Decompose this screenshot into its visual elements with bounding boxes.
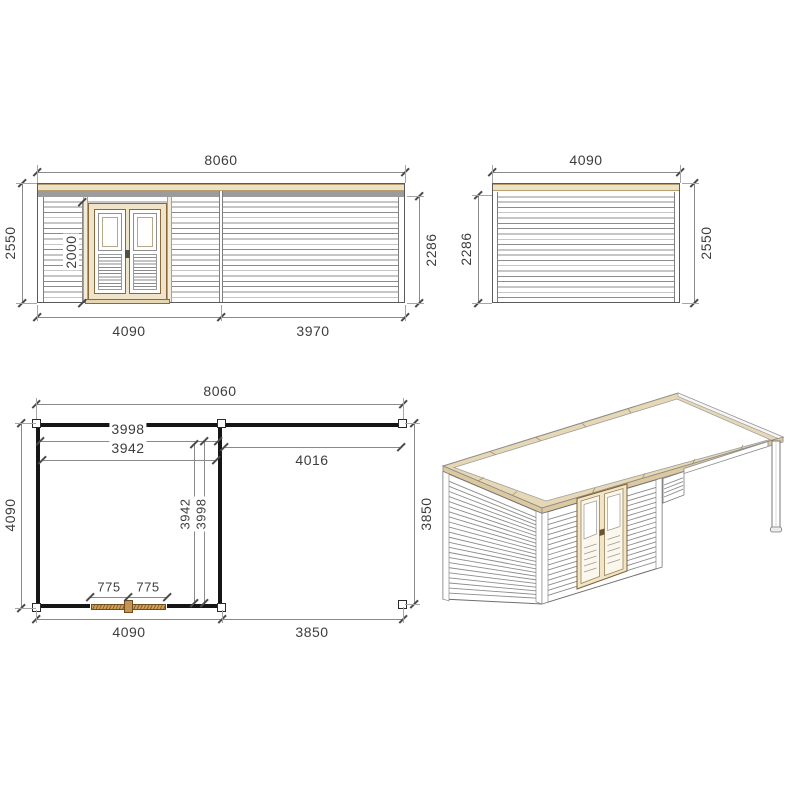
door-louver xyxy=(98,254,122,290)
plan-door-leaf xyxy=(132,604,166,610)
plan-door-leaf xyxy=(91,604,125,610)
plan-door-leaf-right-label: 775 xyxy=(134,580,161,595)
extension-line xyxy=(37,165,38,183)
plan-depth-left-label: 4090 xyxy=(2,496,18,533)
plan-inner-width-b-line xyxy=(42,460,216,461)
door-glass xyxy=(584,501,597,539)
extension-line xyxy=(405,305,406,321)
extension-line xyxy=(407,303,424,304)
corner-post xyxy=(398,197,404,302)
corner-board xyxy=(542,512,548,604)
corner-board xyxy=(656,478,662,569)
door-threshold xyxy=(85,299,170,304)
extension-line xyxy=(36,610,37,623)
front-elevation-building xyxy=(37,183,405,303)
technical-drawing-sheet: 8060 2550 2000 2286 xyxy=(0,0,794,794)
door-height-dim-line xyxy=(82,202,83,303)
plan-top-dim-line xyxy=(36,404,403,405)
corner-post xyxy=(674,192,679,302)
extension-line xyxy=(682,303,699,304)
plan-bottom-left-label: 4090 xyxy=(110,624,147,640)
corner-post xyxy=(493,192,498,302)
plan-right-dim-line xyxy=(414,423,415,604)
plan-inner-width-b-label: 3942 xyxy=(109,440,146,456)
extension-line xyxy=(222,610,223,623)
door-height-label: 2000 xyxy=(63,233,79,270)
extension-line xyxy=(682,183,699,184)
extension-line xyxy=(405,423,420,424)
corner-post xyxy=(38,197,44,302)
door-leaf-right xyxy=(129,209,161,294)
front-left-dim-line xyxy=(22,183,23,303)
side-elevation-building xyxy=(492,183,680,303)
plan-post xyxy=(217,419,226,428)
front-right-dim-line xyxy=(419,196,420,303)
extension-line xyxy=(407,196,424,197)
extension-line xyxy=(405,604,420,605)
iso-double-door xyxy=(577,484,627,589)
canopy-post xyxy=(771,441,782,532)
post-foot xyxy=(771,527,782,532)
front-bottom-left-label: 4090 xyxy=(110,323,147,339)
extension-line xyxy=(15,608,36,609)
extension-line xyxy=(680,165,681,183)
door-glass xyxy=(608,494,621,531)
door-louver xyxy=(133,254,157,290)
wall-siding xyxy=(493,192,679,302)
side-height-label: 2550 xyxy=(698,224,714,261)
front-wall-height-label: 2286 xyxy=(423,231,439,268)
plan-door-meeting-stile xyxy=(124,600,133,613)
door-glass xyxy=(133,213,157,251)
extension-line xyxy=(15,423,36,424)
plan-canopy-width-label: 4016 xyxy=(293,452,330,468)
roof-fascia xyxy=(493,184,679,191)
plan-inner-depth-a-label: 3942 xyxy=(178,497,193,532)
plan-width-label: 8060 xyxy=(201,383,238,399)
extension-line xyxy=(472,303,492,304)
roof-fascia xyxy=(38,184,404,191)
plan-inner-width-a-label: 3998 xyxy=(109,421,146,437)
extension-line xyxy=(405,165,406,183)
extension-line xyxy=(16,183,37,184)
wall-module-joint xyxy=(219,191,223,302)
front-bottom-right-label: 3970 xyxy=(294,323,331,339)
extension-line xyxy=(37,305,38,321)
plan-door-leaf-left-label: 775 xyxy=(95,580,122,595)
door-leaf-left xyxy=(94,209,126,294)
corner-board xyxy=(443,472,449,602)
isometric-view xyxy=(435,383,791,641)
extension-line xyxy=(472,195,492,196)
front-double-door xyxy=(88,203,167,302)
extension-line xyxy=(221,305,222,321)
door-handle xyxy=(125,250,130,258)
side-top-dim-line xyxy=(492,172,680,173)
door-glass xyxy=(98,213,122,251)
front-top-dim-line xyxy=(37,172,405,173)
plan-depth-right-label: 3850 xyxy=(418,495,434,532)
side-wall-height-label: 2286 xyxy=(458,230,474,267)
front-width-label: 8060 xyxy=(202,152,239,168)
extension-line xyxy=(403,607,404,623)
plan-bottom-right-label: 3850 xyxy=(293,624,330,640)
extension-line xyxy=(16,303,37,304)
side-width-label: 4090 xyxy=(567,152,604,168)
plan-canopy-beam xyxy=(222,423,403,427)
plan-left-dim-line xyxy=(21,423,22,608)
plan-canopy-width-line xyxy=(224,447,401,448)
side-left-dim-line xyxy=(478,195,479,303)
door-side-trim xyxy=(167,197,172,302)
front-height-left-label: 2550 xyxy=(2,224,18,261)
extension-line xyxy=(492,165,493,183)
corner-board xyxy=(536,511,542,604)
plan-inner-depth-b-label: 3998 xyxy=(194,497,209,532)
side-right-dim-line xyxy=(694,183,695,303)
